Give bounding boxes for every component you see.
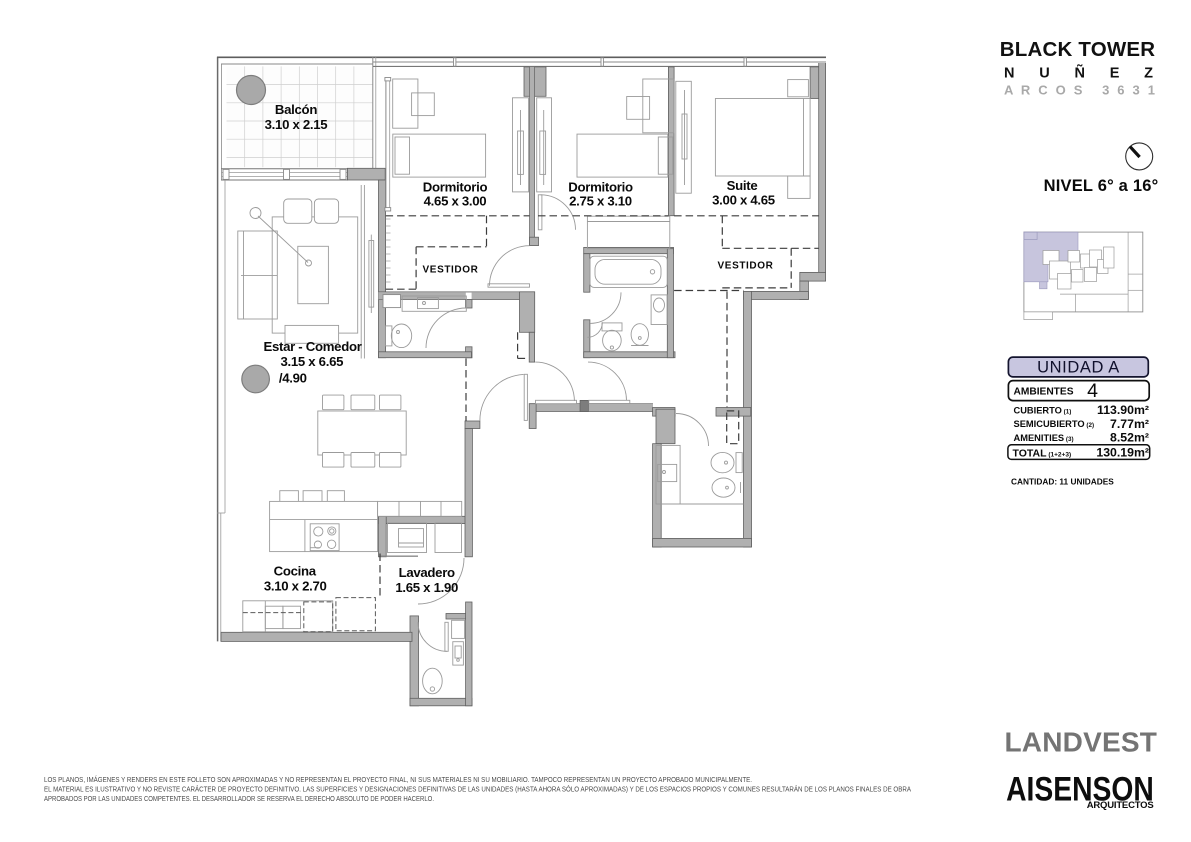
svg-text:Cocina: Cocina: [274, 564, 317, 579]
svg-text:BLACK TOWER: BLACK TOWER: [1000, 38, 1156, 61]
svg-text:VESTIDOR: VESTIDOR: [423, 265, 479, 276]
svg-text:3.00 x 4.65: 3.00 x 4.65: [712, 193, 775, 208]
svg-text:113.90m²: 113.90m²: [1097, 403, 1149, 417]
svg-text:130.19m²: 130.19m²: [1096, 446, 1149, 460]
svg-text:ARQUITECTOS: ARQUITECTOS: [1087, 800, 1154, 811]
svg-text:CANTIDAD: 11 UNIDADES: CANTIDAD: 11 UNIDADES: [1011, 477, 1114, 487]
svg-text:Estar - Comedor: Estar - Comedor: [263, 339, 361, 354]
svg-text:APROBADOS POR LAS UNIDADES COM: APROBADOS POR LAS UNIDADES COMPETENTES. …: [44, 794, 434, 803]
svg-text:EL MATERIAL ES ILUSTRATIVO Y N: EL MATERIAL ES ILUSTRATIVO Y NO REVISTE …: [44, 785, 911, 794]
svg-text:UNIDAD A: UNIDAD A: [1037, 358, 1120, 376]
svg-text:Lavadero: Lavadero: [399, 565, 455, 580]
svg-text:1.65 x 1.90: 1.65 x 1.90: [395, 580, 458, 595]
svg-text:Dormitorio: Dormitorio: [568, 180, 633, 195]
svg-text:Balcón: Balcón: [275, 102, 317, 117]
svg-text:NIVEL 6° a 16°: NIVEL 6° a 16°: [1044, 177, 1159, 195]
svg-text:A R C O S 3 6 3 1: A R C O S 3 6 3 1: [1004, 83, 1155, 98]
svg-text:4.65 x 3.00: 4.65 x 3.00: [424, 194, 487, 209]
svg-text:N U Ñ E Z: N U Ñ E Z: [1004, 64, 1153, 82]
svg-text:/4.90: /4.90: [279, 371, 307, 386]
svg-text:Suite: Suite: [727, 178, 758, 193]
svg-text:2.75 x 3.10: 2.75 x 3.10: [569, 194, 632, 209]
svg-text:3.15 x 6.65: 3.15 x 6.65: [280, 354, 343, 369]
svg-text:AMBIENTES: AMBIENTES: [1014, 386, 1074, 397]
svg-text:VESTIDOR: VESTIDOR: [718, 261, 774, 272]
svg-text:Dormitorio: Dormitorio: [423, 180, 488, 195]
svg-text:8.52m²: 8.52m²: [1110, 431, 1149, 445]
svg-text:LOS PLANOS, IMÁGENES Y RENDERS: LOS PLANOS, IMÁGENES Y RENDERS EN ESTE F…: [44, 775, 752, 784]
svg-text:7.77m²: 7.77m²: [1110, 417, 1149, 431]
svg-text:4: 4: [1087, 380, 1098, 402]
svg-text:3.10 x 2.15: 3.10 x 2.15: [265, 117, 328, 132]
svg-text:LANDVEST: LANDVEST: [1005, 727, 1158, 758]
svg-text:SEMICUBIERTO (2): SEMICUBIERTO (2): [1014, 419, 1095, 429]
svg-text:3.10 x 2.70: 3.10 x 2.70: [264, 579, 327, 594]
